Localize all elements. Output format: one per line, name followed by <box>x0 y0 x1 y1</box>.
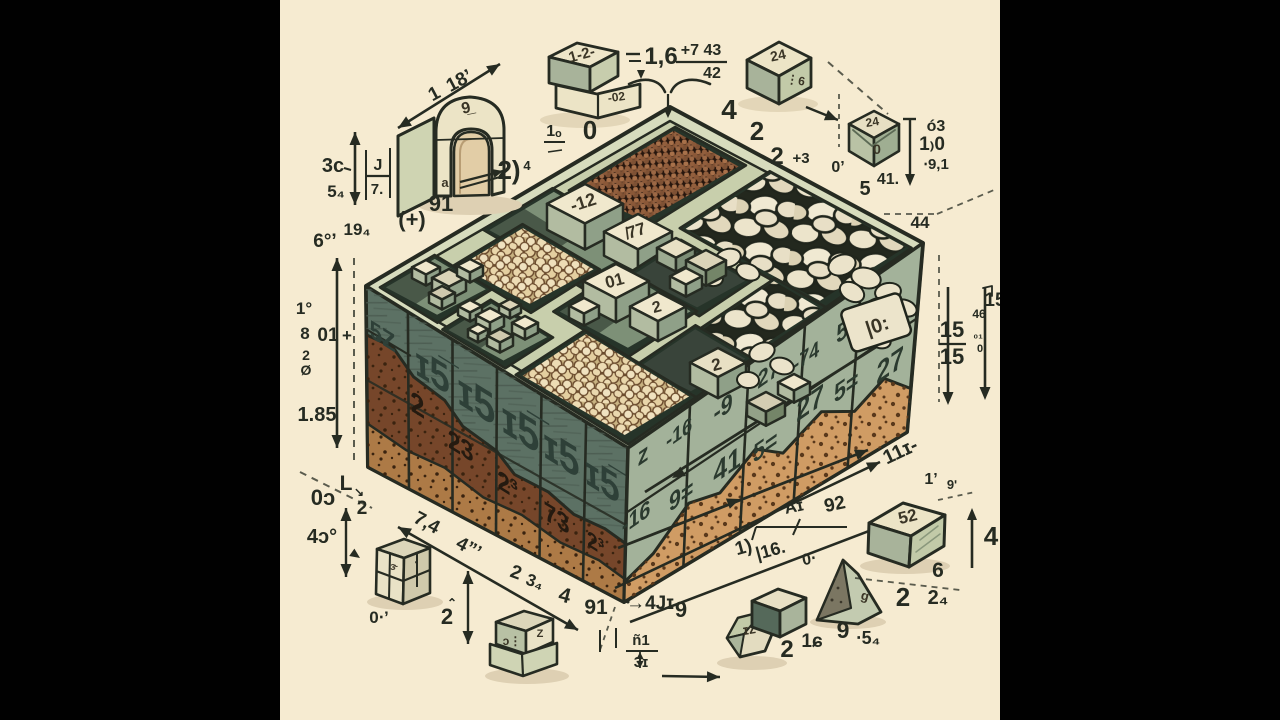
svg-text:7.: 7. <box>371 181 384 198</box>
svg-text:4: 4 <box>721 94 737 125</box>
svg-text:19₄: 19₄ <box>343 220 370 239</box>
svg-text:8: 8 <box>300 324 309 343</box>
svg-text:⋅: ⋅ <box>414 557 418 569</box>
svg-text:1ɕ: 1ɕ <box>801 631 823 652</box>
svg-text:2: 2 <box>770 143 783 170</box>
svg-text:0: 0 <box>583 115 597 145</box>
svg-text:ñ1: ñ1 <box>632 632 650 649</box>
svg-text:→4Jɪ: →4Jɪ <box>626 593 674 614</box>
svg-text:L: L <box>340 472 353 495</box>
svg-text:0: 0 <box>873 141 881 157</box>
svg-text:5₄: 5₄ <box>327 182 345 201</box>
svg-text:2: 2 <box>302 347 310 363</box>
svg-text:1°: 1° <box>296 299 312 318</box>
svg-text:a: a <box>441 175 449 190</box>
svg-text:1ₒ: 1ₒ <box>546 123 562 140</box>
svg-text:46: 46 <box>972 307 986 321</box>
svg-text:Ø: Ø <box>301 362 312 378</box>
svg-text:15: 15 <box>940 317 964 342</box>
svg-text:1₎0: 1₎0 <box>919 134 945 155</box>
svg-text:2): 2) <box>497 155 520 185</box>
svg-text:0ɔ: 0ɔ <box>311 485 335 510</box>
svg-text:2: 2 <box>357 498 368 519</box>
svg-text:+7 43: +7 43 <box>681 42 722 59</box>
svg-text:2: 2 <box>896 582 910 612</box>
svg-text:42: 42 <box>703 65 721 82</box>
svg-text:0⋅: 0⋅ <box>801 550 818 569</box>
svg-text:3c: 3c <box>322 155 344 177</box>
svg-text:2₄: 2₄ <box>928 587 949 609</box>
svg-text:1.85: 1.85 <box>298 404 337 426</box>
svg-text:₀₁: ₀₁ <box>973 329 983 341</box>
svg-text:Z: Z <box>537 628 544 640</box>
svg-text:4ɔ°: 4ɔ° <box>307 526 337 548</box>
svg-text:15: 15 <box>940 344 964 369</box>
svg-text:2: 2 <box>780 636 793 663</box>
svg-text:+3: +3 <box>792 150 809 167</box>
svg-text:6°’: 6°’ <box>313 231 336 252</box>
svg-text:01: 01 <box>317 325 339 346</box>
svg-text:2: 2 <box>441 604 453 629</box>
svg-text:1’: 1’ <box>924 471 937 488</box>
svg-text:92: 92 <box>822 492 847 517</box>
svg-text:3ɪ: 3ɪ <box>634 654 648 671</box>
svg-text:2: 2 <box>750 116 764 146</box>
svg-text:0: 0 <box>977 343 983 355</box>
svg-text:↘: ↘ <box>354 485 364 499</box>
svg-text:5: 5 <box>859 178 870 200</box>
svg-text:ɝ: ɝ <box>390 561 398 573</box>
svg-text:1,6: 1,6 <box>644 43 677 70</box>
svg-text:⋅5₄: ⋅5₄ <box>856 628 880 648</box>
svg-text:+: + <box>342 326 352 345</box>
svg-text:ó3: ó3 <box>927 118 946 135</box>
svg-text:91: 91 <box>584 596 608 619</box>
svg-text:0’: 0’ <box>831 159 844 176</box>
svg-text:6: 6 <box>932 559 944 582</box>
svg-text:9: 9 <box>675 597 687 622</box>
svg-text:-02: -02 <box>607 89 626 105</box>
svg-text:9ʹ: 9ʹ <box>947 477 957 492</box>
svg-text:4: 4 <box>984 521 999 551</box>
svg-text:41.: 41. <box>877 171 899 188</box>
svg-text:9: 9 <box>837 617 850 643</box>
svg-text:0⋅’: 0⋅’ <box>369 608 389 627</box>
svg-text:91: 91 <box>429 191 453 216</box>
svg-text:24: 24 <box>865 114 881 130</box>
svg-text:4: 4 <box>523 158 531 173</box>
svg-text:J: J <box>374 157 383 174</box>
svg-text:44: 44 <box>911 213 930 232</box>
svg-text:ɔ⋮: ɔ⋮ <box>503 634 522 648</box>
svg-text:(+): (+) <box>398 207 426 232</box>
svg-text:⋅9,1: ⋅9,1 <box>923 156 949 173</box>
svg-text:Aɪ: Aɪ <box>783 495 806 518</box>
